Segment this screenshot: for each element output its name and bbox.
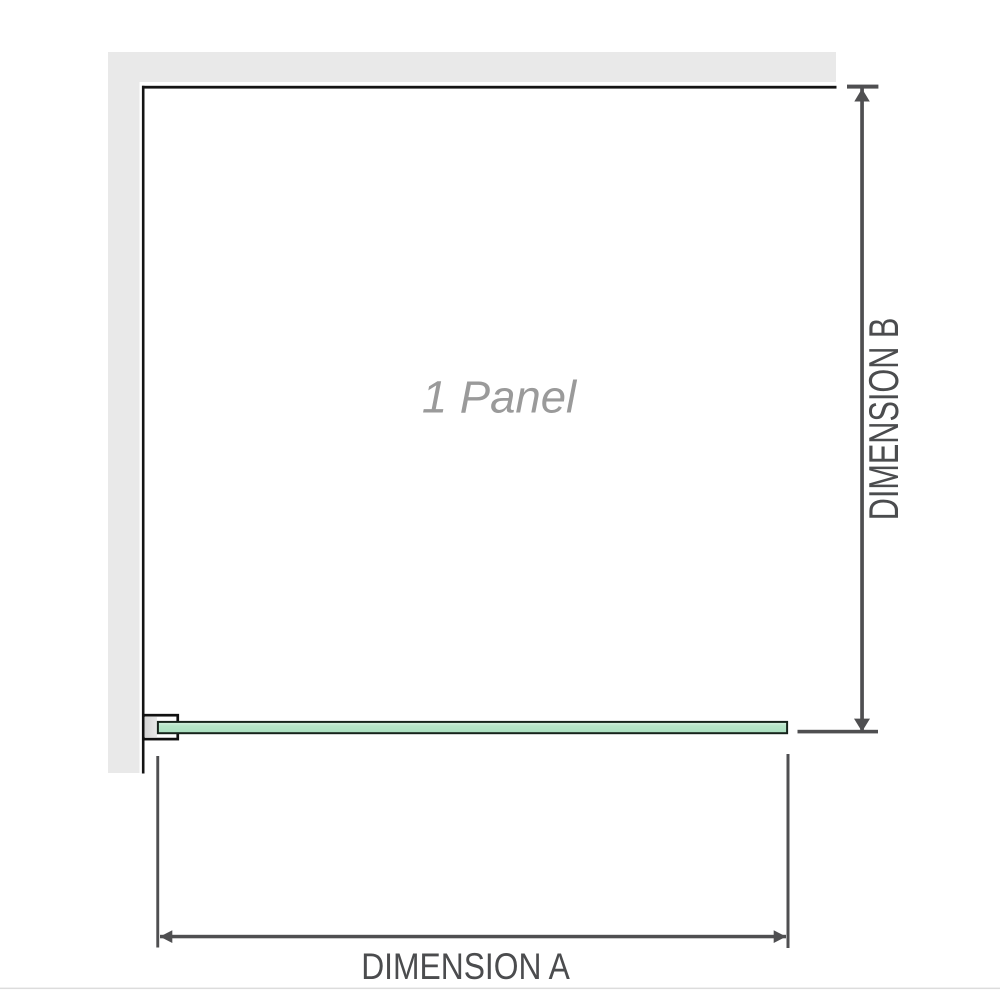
svg-text:DIMENSION B: DIMENSION B bbox=[860, 318, 907, 521]
svg-text:DIMENSION A: DIMENSION A bbox=[361, 947, 570, 988]
svg-text:1 Panel: 1 Panel bbox=[422, 372, 578, 423]
